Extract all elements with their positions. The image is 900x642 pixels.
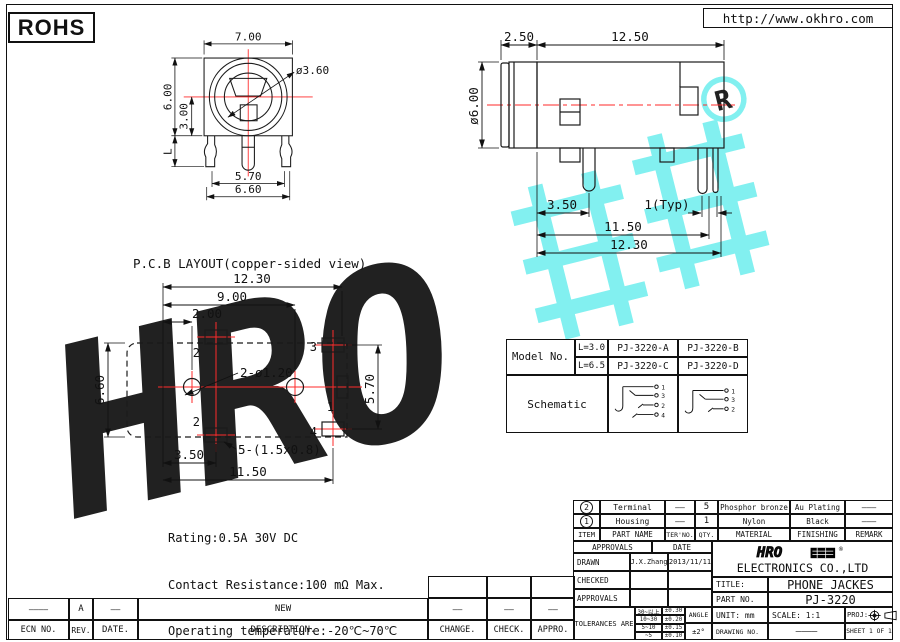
- model-d: PJ-3220-D: [678, 357, 748, 375]
- tol-range-4: ~5: [635, 632, 662, 640]
- dim-pcb-pads: 5-(1.5x0.8): [238, 442, 321, 457]
- rev-row-appro: ——: [531, 598, 575, 620]
- side-body: [501, 62, 724, 194]
- pcb-pads: [184, 330, 349, 442]
- schematic-3pin-cell: 1 3 2: [678, 375, 748, 433]
- rev-row-check: ——: [487, 598, 531, 620]
- schematic-4pin: 1 3 2 4: [610, 379, 676, 429]
- pad-label-1: 1: [327, 400, 334, 414]
- parts-h-material: MATERIAL: [718, 528, 790, 541]
- front-view: 7.00 ø3.60 6.00 3.00 L 5.70 6.60: [140, 28, 375, 240]
- website-url: http://www.okhro.com: [703, 8, 893, 28]
- scale-cell: SCALE: 1:1: [768, 607, 845, 623]
- spec-rating: Rating:0.5A 30V DC: [168, 531, 397, 547]
- pin-label: 1: [731, 388, 735, 395]
- parts-h-item: ITEM: [573, 528, 600, 541]
- side-view: 2.50 12.50 ø6.00 3.50 1(Typ) 11.50 12.30: [450, 28, 745, 270]
- parts-r1-material: Phosphor bronze: [718, 500, 790, 514]
- pin-label: 4: [661, 412, 665, 419]
- rev-extra-check: [487, 576, 531, 598]
- tol-value-3: ±0.15: [662, 624, 685, 632]
- parts-r1-finishing: Au Plating: [790, 500, 845, 514]
- rev-h-change: CHANGE.: [428, 620, 487, 640]
- parts-h-ter: TER'NO.: [665, 528, 695, 541]
- rev-h-check: CHECK.: [487, 620, 531, 640]
- rev-row-desc: NEW: [138, 598, 428, 620]
- drawn-by: J.X.Zhang: [630, 553, 668, 571]
- approvals-header: APPROVALS: [573, 541, 652, 553]
- part-no-label: PART NO.: [712, 592, 768, 607]
- part-no-value: PJ-3220: [768, 592, 893, 607]
- pad-label-2-top: 2: [193, 346, 200, 360]
- dim-side-cap: 2.50: [504, 29, 534, 44]
- parts-r1-ter: ——: [665, 500, 695, 514]
- dim-pcb-w2: 9.00: [217, 289, 247, 304]
- registered-mark: ®: [838, 545, 842, 553]
- dim-side-span1: 11.50: [604, 219, 642, 234]
- dim-front-pins: 5.70: [235, 170, 262, 183]
- title-label: TITLE:: [712, 577, 768, 592]
- rev-row-change: ——: [428, 598, 487, 620]
- parts-r1-remark: ———: [845, 500, 893, 514]
- pcb-centerlines: [158, 322, 362, 452]
- company-cell: HRO ® ELECTRONICS CO.,LTD: [712, 541, 893, 577]
- pin-label: 2: [661, 403, 665, 410]
- circled-1: 1: [580, 515, 593, 528]
- parts-r1-qty: 5: [695, 500, 718, 514]
- drawing-title: PHONE JACKES: [768, 577, 893, 592]
- tol-value-4: ±0.10: [662, 632, 685, 640]
- model-b: PJ-3220-B: [678, 339, 748, 357]
- rev-h-rev: REV.: [69, 620, 93, 640]
- parts-r2-qty: 1: [695, 514, 718, 528]
- pcb-dimensions: 12.30 9.00 2.00 6.60 5.70 2-ø1.20 5-(1.5…: [92, 271, 382, 484]
- date-header: DATE: [652, 541, 712, 553]
- dim-side-span2: 12.30: [610, 237, 648, 252]
- dim-front-height: 6.00: [161, 84, 174, 111]
- dim-side-typ: 1(Typ): [644, 197, 689, 212]
- angle-value: ±2°: [685, 623, 712, 640]
- model-a: PJ-3220-A: [608, 339, 678, 357]
- dim-front-width: 7.00: [235, 30, 262, 43]
- drawing-no-label: DRAWING NO.: [712, 623, 768, 640]
- pin-label: 1: [661, 385, 665, 392]
- dim-pcb-span: 11.50: [229, 464, 267, 479]
- checked-date: [668, 571, 712, 589]
- pcb-outline: [127, 343, 347, 437]
- rev-row-ecn: ————: [8, 598, 69, 620]
- spec-contact-resistance: Contact Resistance:100 mΩ Max.: [168, 578, 397, 594]
- rev-h-appro: APPRO.: [531, 620, 575, 640]
- pad-label-3: 3: [310, 340, 317, 354]
- pin-label: 2: [731, 407, 735, 414]
- angle-label: ANGLE: [685, 607, 712, 623]
- third-angle-projection-icon: [868, 609, 898, 622]
- dim-pcb-h: 6.60: [92, 375, 107, 405]
- company-name: ELECTRONICS CO.,LTD: [737, 561, 869, 575]
- pad-label-2-bottom: 2: [193, 415, 200, 429]
- parts-r2-material: Nylon: [718, 514, 790, 528]
- dim-pcb-w3: 2.00: [192, 306, 222, 321]
- dim-front-leg: L: [161, 148, 174, 155]
- rev-h-desc: DESCRIPTION.: [138, 620, 428, 640]
- rev-extra-appro: [531, 576, 575, 598]
- pad-label-4: 4: [310, 425, 317, 439]
- sheet-cell: SHEET 1 OF 1: [845, 623, 893, 640]
- pin-label: 3: [731, 397, 735, 404]
- tolerances-label: TOLERANCES ARE: [573, 607, 635, 640]
- pcb-pad-labels: 2 3 1 4 2: [193, 340, 334, 439]
- unit-cell: UNIT: mm: [712, 607, 768, 623]
- company-logo-hro: HRO: [755, 545, 782, 561]
- parts-h-name: PART NAME: [600, 528, 665, 541]
- parts-r2-remark: ———: [845, 514, 893, 528]
- company-logo: HRO ®: [753, 544, 853, 561]
- parts-r2-item: 1: [573, 514, 600, 528]
- rohs-badge: ROHS: [8, 12, 95, 43]
- front-dimensions: 7.00 ø3.60 6.00 3.00 L 5.70 6.60: [161, 30, 329, 200]
- parts-r2-name: Housing: [600, 514, 665, 528]
- schematic-4pin-cell: 1 3 2 4: [608, 375, 678, 433]
- pcb-title: P.C.B LAYOUT(copper-sided view): [133, 256, 366, 271]
- model-l2: L=6.5: [575, 357, 608, 375]
- dim-pcb-w: 12.30: [233, 271, 271, 286]
- pcb-layout: P.C.B LAYOUT(copper-sided view) 2 3 1: [95, 253, 440, 493]
- approved-by: [630, 589, 668, 607]
- tol-range-2: 10~30: [635, 615, 662, 623]
- model-no-label: Model No.: [506, 339, 575, 375]
- schematic-label: Schematic: [506, 375, 608, 433]
- tol-value-2: ±0.20: [662, 615, 685, 623]
- model-l1: L=3.0: [575, 339, 608, 357]
- dim-side-pin: 3.50: [547, 197, 577, 212]
- dim-side-body: 12.50: [611, 29, 649, 44]
- pin-label: 3: [661, 393, 665, 400]
- approved-date: [668, 589, 712, 607]
- parts-h-finishing: FINISHING: [790, 528, 845, 541]
- dim-front-dia: ø3.60: [296, 64, 329, 77]
- dim-side-dia: ø6.00: [466, 87, 481, 125]
- drawn-label: DRAWN: [573, 553, 630, 571]
- rev-h-ecn: ECN NO.: [8, 620, 69, 640]
- model-c: PJ-3220-C: [608, 357, 678, 375]
- proj-label: PROJ:: [847, 611, 868, 619]
- rev-row-rev: A: [69, 598, 93, 620]
- parts-h-remark: REMARK: [845, 528, 893, 541]
- company-logo-hanzi-block: [810, 547, 835, 557]
- checked-label: CHECKED: [573, 571, 630, 589]
- drawn-date: 2013/11/11: [668, 553, 712, 571]
- checked-by: [630, 571, 668, 589]
- circled-2: 2: [580, 501, 593, 514]
- tol-value-1: ±0.30: [662, 607, 685, 615]
- front-centerlines: [184, 49, 313, 176]
- tol-range-1: 30~以上: [635, 607, 662, 615]
- dim-front-inner: 3.00: [177, 103, 190, 130]
- drawing-no-value: ————: [768, 623, 845, 640]
- drawing-sheet: HRO R ROHS http://www.okhro.com: [0, 0, 900, 642]
- parts-r1-item: 2: [573, 500, 600, 514]
- rev-row-date: ——: [93, 598, 138, 620]
- parts-r2-ter: ——: [665, 514, 695, 528]
- dim-pcb-off: 3.50: [174, 447, 204, 462]
- rev-h-date: DATE.: [93, 620, 138, 640]
- parts-h-qty: QTY.: [695, 528, 718, 541]
- parts-r1-name: Terminal: [600, 500, 665, 514]
- dim-front-feet: 6.60: [235, 183, 262, 196]
- dim-pcb-holes: 2-ø1.20: [240, 365, 293, 380]
- projection-cell: PROJ:: [845, 607, 893, 623]
- approved-label: APPROVALS: [573, 589, 630, 607]
- dim-pcb-pitch: 5.70: [362, 374, 377, 404]
- tol-range-3: 5~10: [635, 624, 662, 632]
- schematic-3pin: 1 3 2: [680, 379, 746, 429]
- parts-r2-finishing: Black: [790, 514, 845, 528]
- rev-extra-change: [428, 576, 487, 598]
